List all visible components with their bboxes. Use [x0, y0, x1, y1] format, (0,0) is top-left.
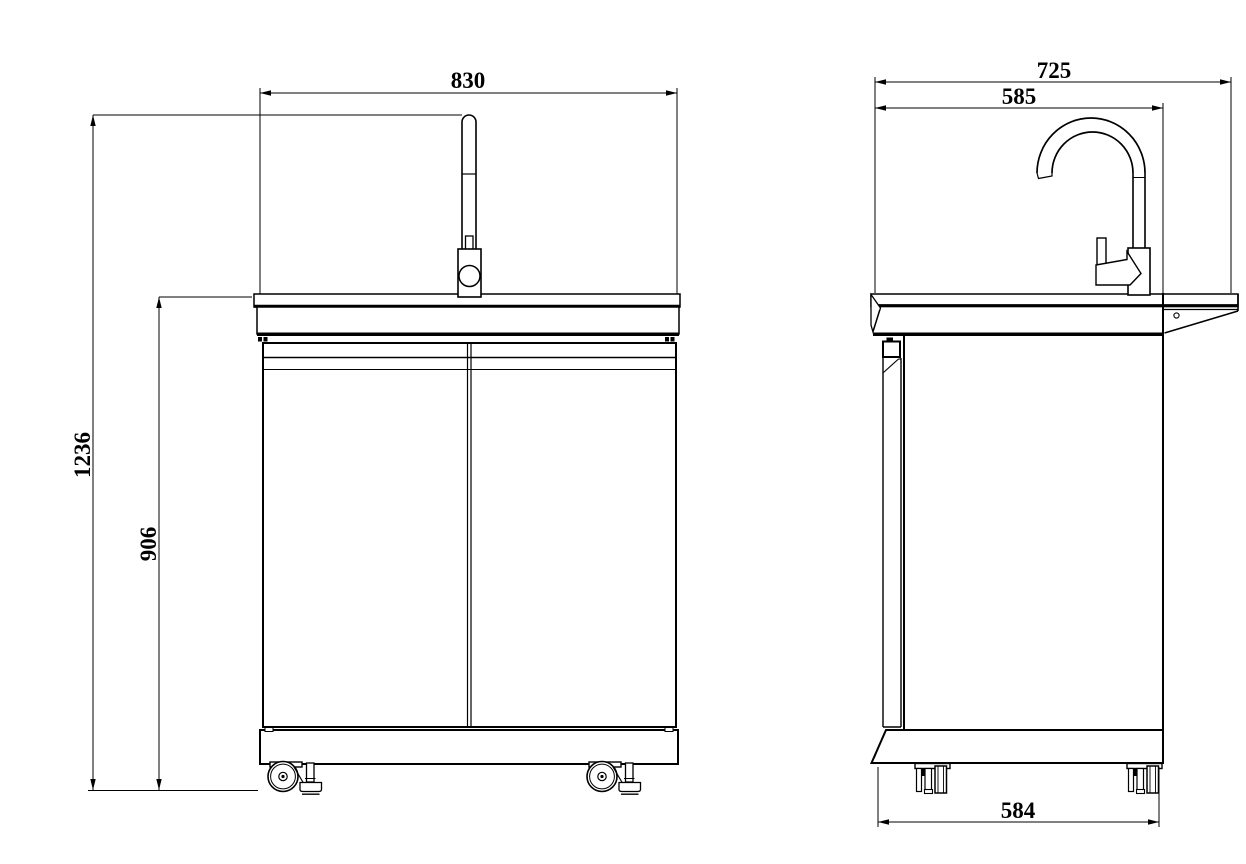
hinge-blocks-front: [258, 337, 675, 342]
countertop-side: [871, 294, 1238, 334]
bolt-hole: [1174, 313, 1179, 318]
dimension-bench-height: 906: [88, 297, 258, 791]
caster-front-left: [268, 762, 322, 795]
caster-front-right: [587, 762, 641, 795]
arrowhead: [1152, 105, 1163, 110]
dim-label-base-depth: 584: [1001, 798, 1036, 823]
cabinet-side: [872, 293, 1164, 763]
wheel-edge: [1147, 766, 1159, 793]
hinge-block-side: [883, 342, 900, 358]
arrowhead: [875, 79, 886, 84]
leveling-foot: [307, 763, 315, 782]
caster-side-rear: [1127, 764, 1162, 794]
arrowhead: [90, 779, 95, 790]
front-view: 830 1236 906: [70, 68, 680, 794]
door-profile-side: [883, 358, 901, 727]
faucet-spout-front: [462, 115, 476, 250]
dim-label-overall-depth: 725: [1037, 58, 1072, 83]
faucet-side: [1037, 118, 1150, 295]
arrowhead: [878, 819, 889, 824]
arrowhead: [666, 90, 677, 95]
arrowhead: [260, 90, 271, 95]
arrowhead: [1148, 819, 1159, 824]
rear-support-bracket: [1163, 310, 1238, 334]
arrowhead: [90, 115, 95, 126]
dim-label-top-depth: 585: [1002, 84, 1037, 109]
door-panels-front: [263, 343, 676, 727]
side-view: 725 585 584: [871, 58, 1238, 827]
sink-fascia-front: [257, 307, 679, 334]
leveling-foot: [626, 763, 634, 782]
doors-front: [263, 343, 676, 727]
sink-module-technical-drawing: 830 1236 906: [0, 0, 1246, 864]
arrowhead: [1220, 79, 1231, 84]
technical-drawing-page: 830 1236 906: [0, 0, 1246, 864]
arrowhead: [156, 779, 161, 790]
spout-tip: [1037, 173, 1052, 179]
faucet-lever-side: [1097, 238, 1106, 266]
dim-label-bench-height: 906: [136, 527, 161, 562]
arrowhead: [875, 105, 886, 110]
plinth-front: [260, 730, 678, 764]
dim-label-front-width: 830: [451, 68, 486, 93]
base-front: [260, 728, 678, 765]
gooseneck-inner: [1052, 132, 1133, 173]
faucet-front: [458, 115, 481, 297]
arrowhead: [156, 297, 161, 308]
plinth-side: [872, 730, 1164, 763]
caster-side-front: [915, 764, 950, 794]
countertop-front: [254, 294, 680, 342]
faucet-knob-front: [459, 266, 480, 287]
wheel-edge: [935, 766, 947, 793]
dimension-overall-depth: 725: [875, 58, 1231, 293]
dim-label-overall-height: 1236: [70, 432, 95, 478]
